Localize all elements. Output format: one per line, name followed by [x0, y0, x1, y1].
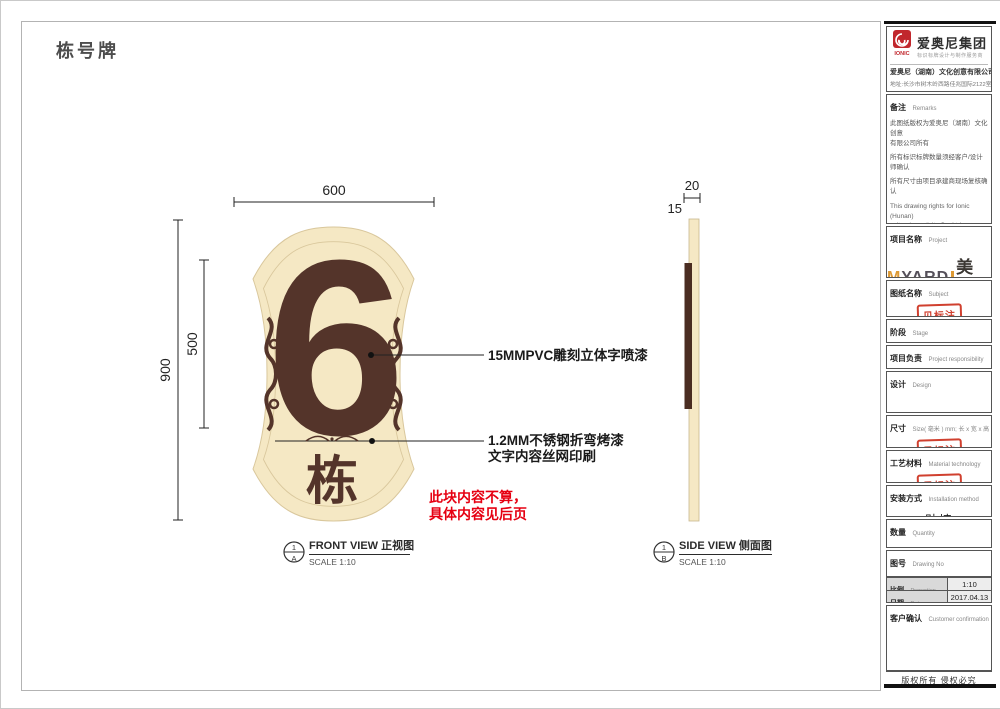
brand-yard: YARD — [901, 269, 949, 278]
leader-dot-steel — [369, 438, 375, 444]
drawing-canvas: 600 900 500 6 — [1, 1, 881, 691]
remarks-box: 备注 Remarks 此图纸版权为爱奥尼（湖南）文化创意 有限公司所有 所有标识… — [886, 94, 992, 224]
dimension-inner — [199, 260, 209, 428]
remark-item: 此图纸版权为爱奥尼（湖南）文化创意 有限公司所有 — [890, 119, 988, 149]
dimension-height — [173, 220, 183, 520]
proportion-value: 1:10 — [947, 578, 991, 590]
side-view-scale: SCALE 1:10 — [679, 557, 726, 567]
project-label-zh: 项目名称 — [890, 235, 922, 244]
panel-bottom-bar — [884, 684, 996, 688]
see-annotation-stamp: 见标注 — [916, 473, 962, 483]
remark-item: 所有标识标牌数量须经客户/设计师确认 — [890, 153, 988, 173]
project-box: 项目名称 Project MYARD 美院 — [886, 226, 992, 278]
remark-item: This drawing rights for Ionic (Hunan) cu… — [890, 202, 988, 224]
responsibility-label-zh: 项目负责 — [890, 354, 922, 363]
remark-item: 所有尺寸由项目承建商现场复核确认 — [890, 177, 988, 197]
subject-box: 图纸名称 Subject 见标注 — [886, 280, 992, 317]
side-view-ref: 1 B — [654, 542, 674, 563]
company-phone: 电话:0731-85074045 — [890, 89, 988, 92]
subject-label-zh: 图纸名称 — [890, 289, 922, 298]
panel-top-bar — [884, 21, 996, 24]
stage-box: 阶段 Stage — [886, 319, 992, 343]
design-box: 设计 Design — [886, 371, 992, 413]
callout-pvc: 15MMPVC雕刻立体字喷漆 — [488, 347, 648, 363]
install-value: 贴墙 — [887, 510, 991, 517]
title-block-panel: IONIC 爱奥尼集团 标识标牌设计与制作服务商 爱奥尼（湖南）文化创意有限公司… — [884, 21, 996, 691]
sign-number: 6 — [266, 208, 405, 487]
responsibility-box: 项目负责 Project responsibility — [886, 345, 992, 369]
design-label-zh: 设计 — [890, 380, 906, 389]
see-annotation-stamp: 见标注 — [916, 438, 962, 448]
material-label-zh: 工艺材料 — [890, 459, 922, 468]
drawing-no-label-en: Drawing No — [912, 562, 943, 568]
callout-steel-line2: 文字内容丝网印刷 — [488, 448, 596, 464]
ionic-logo-icon: IONIC — [891, 30, 913, 61]
side-ref-letter: B — [661, 554, 666, 563]
responsibility-label-en: Project responsibility — [928, 357, 983, 363]
brand-separator — [951, 271, 954, 278]
remarks-label-zh: 备注 — [890, 103, 906, 112]
project-label-en: Project — [928, 238, 947, 244]
dimension-height-label: 900 — [157, 358, 173, 382]
customer-box: 客户确认 Customer confirmation — [886, 605, 992, 671]
company-box: IONIC 爱奥尼集团 标识标牌设计与制作服务商 爱奥尼（湖南）文化创意有限公司… — [886, 26, 992, 92]
company-group-name: 爱奥尼集团 — [917, 33, 987, 52]
quantity-box: 数量 Quantity 20块 — [886, 519, 992, 548]
front-ref-num: 1 — [292, 543, 296, 552]
company-name: 爱奥尼（湖南）文化创意有限公司 — [890, 67, 988, 77]
proportion-date-box: 比例 Proportion 1:10 日期 Date 2017.04.13 — [886, 577, 992, 603]
quantity-value: 20块 — [887, 544, 991, 548]
size-box: 尺寸 Size( 毫米 ) mm; 长 x 宽 x 高 见标注 — [886, 415, 992, 448]
dimension-width-label: 600 — [322, 182, 346, 198]
quantity-label-zh: 数量 — [890, 528, 906, 537]
side-view-label: SIDE VIEW 侧面图 — [679, 538, 772, 552]
date-row: 日期 Date 2017.04.13 — [887, 591, 991, 603]
design-label-en: Design — [912, 383, 931, 389]
drawing-no-box: 图号 Drawing No N1 — [886, 550, 992, 577]
dimension-inner-label: 500 — [184, 332, 200, 356]
proportion-row: 比例 Proportion 1:10 — [887, 578, 991, 591]
front-view-label: FRONT VIEW 正视图 — [309, 538, 414, 552]
material-box: 工艺材料 Material technology 见标注 — [886, 450, 992, 483]
install-label-zh: 安装方式 — [890, 494, 922, 503]
quantity-label-en: Quantity — [912, 531, 934, 537]
sign-suffix: 栋 — [306, 453, 358, 511]
company-address: 地址:长沙市树木岭西路佳兆国际2122室 — [890, 79, 988, 88]
front-view-ref: 1 A — [284, 542, 304, 563]
date-label-zh: 日期 — [890, 600, 904, 603]
size-label-en: Size( 毫米 ) mm; 长 x 宽 x 高 — [912, 427, 989, 433]
side-dim-ticks — [684, 193, 700, 203]
stage-label-zh: 阶段 — [890, 328, 906, 337]
front-ref-letter: A — [291, 554, 296, 563]
red-note-line1: 此块内容不算， — [429, 489, 527, 505]
leader-dot-pvc — [368, 352, 374, 358]
size-label-zh: 尺寸 — [890, 424, 906, 433]
red-note-line2: 具体内容见后页 — [428, 506, 527, 522]
side-ref-num: 1 — [662, 543, 666, 552]
see-annotation-stamp: 见标注 — [916, 303, 962, 317]
callout-steel-line1: 1.2MM不锈钢折弯烤漆 — [488, 432, 624, 448]
drawing-sheet: 栋号牌 600 900 500 — [0, 0, 1000, 709]
install-box: 安装方式 Installation method 贴墙 — [886, 485, 992, 517]
dimension-width — [234, 197, 434, 207]
subject-label-en: Subject — [928, 292, 948, 298]
date-value: 2017.04.13 — [947, 591, 991, 603]
myard-brand-logo: MYARD 美院 — [887, 253, 991, 278]
install-label-en: Installation method — [928, 497, 978, 503]
proportion-label-zh: 比例 — [890, 587, 904, 590]
proportion-label-en: Proportion — [910, 588, 935, 590]
customer-label-zh: 客户确认 — [890, 614, 922, 623]
remarks-label-en: Remarks — [912, 106, 936, 112]
date-label-en: Date — [910, 601, 922, 603]
brand-cn: 美院 — [956, 253, 991, 278]
company-tagline: 标识标牌设计与制作服务商 — [917, 52, 987, 59]
ionic-logo-text: IONIC — [894, 51, 909, 56]
stage-label-en: Stage — [912, 331, 928, 337]
side-dim-thickness: 20 — [685, 178, 699, 193]
drawing-no-label-zh: 图号 — [890, 559, 906, 568]
side-view-letter-profile — [685, 263, 693, 409]
front-view-scale: SCALE 1:10 — [309, 557, 356, 567]
brand-m: M — [887, 269, 901, 278]
side-dim-face: 15 — [668, 201, 682, 216]
customer-label-en: Customer confirmation — [928, 617, 988, 623]
material-label-en: Material technology — [928, 462, 980, 468]
